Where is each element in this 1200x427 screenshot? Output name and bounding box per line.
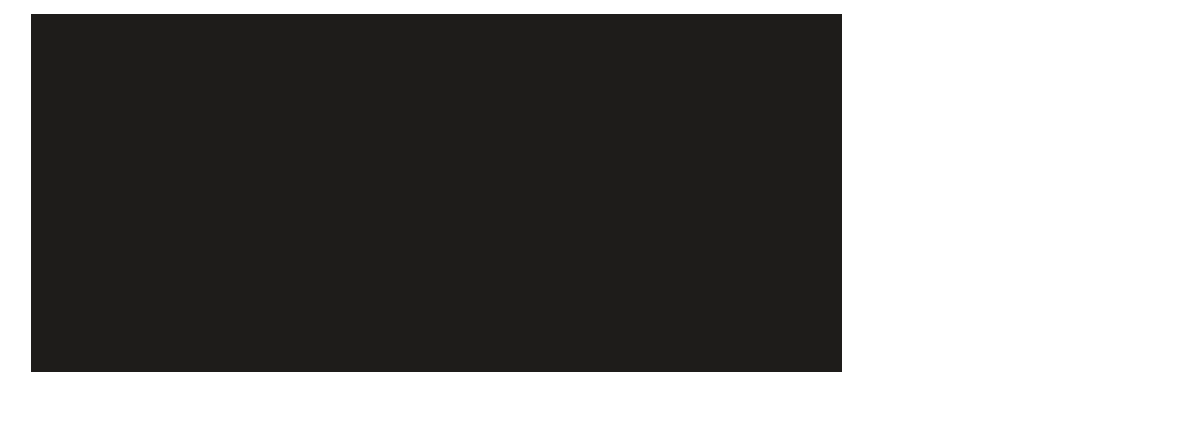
page-canvas: { "canvas": { "background_color": "#ffff… bbox=[0, 0, 1200, 427]
blank-screen-viewport[interactable] bbox=[31, 14, 842, 372]
